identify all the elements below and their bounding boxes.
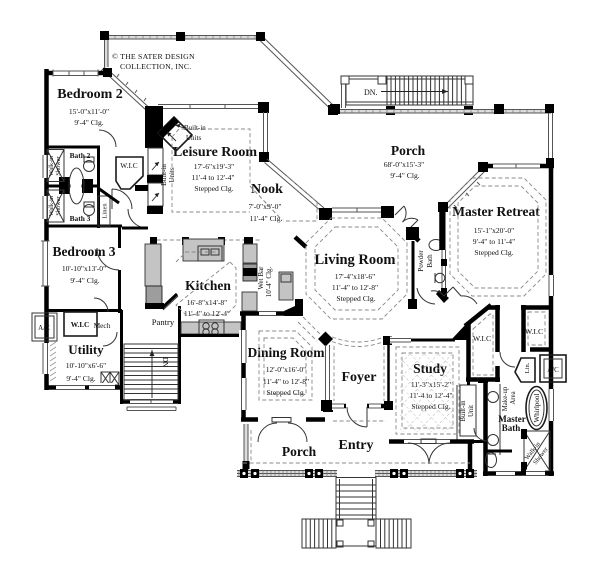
- svg-text:9'-4" Clg.: 9'-4" Clg.: [66, 374, 95, 383]
- svg-text:Linen: Linen: [102, 203, 109, 219]
- svg-text:Built-in: Built-in: [460, 400, 467, 422]
- svg-text:COLLECTION, INC.: COLLECTION, INC.: [120, 62, 191, 71]
- svg-text:16'-8"x14'-8": 16'-8"x14'-8": [187, 298, 228, 307]
- svg-text:12'-0"x16'-0": 12'-0"x16'-0": [266, 365, 307, 374]
- svg-text:11'-4" to 12'-8": 11'-4" to 12'-8": [263, 377, 309, 386]
- svg-text:Utility: Utility: [68, 342, 104, 357]
- svg-text:DN: DN: [161, 357, 169, 367]
- svg-text:11'-4 to 12'-4": 11'-4 to 12'-4": [191, 173, 234, 182]
- svg-text:9'-4" Clg.: 9'-4" Clg.: [390, 171, 419, 180]
- svg-text:9'-4" to 11'-4": 9'-4" to 11'-4": [473, 237, 515, 246]
- svg-text:Whirlpool: Whirlpool: [533, 394, 541, 423]
- svg-text:Wet Bar: Wet Bar: [257, 266, 265, 290]
- svg-text:W.I.C: W.I.C: [71, 320, 90, 329]
- svg-text:Pantry: Pantry: [152, 317, 175, 327]
- svg-text:DN.: DN.: [364, 88, 378, 97]
- svg-text:15'-1"x20'-0": 15'-1"x20'-0": [474, 226, 515, 235]
- svg-text:10'-10"x6'-6": 10'-10"x6'-6": [66, 361, 107, 370]
- svg-text:Leisure Room: Leisure Room: [173, 145, 257, 160]
- svg-text:Bedroom 3: Bedroom 3: [52, 244, 115, 259]
- svg-text:15'-0"x11'-0": 15'-0"x11'-0": [69, 107, 109, 116]
- svg-text:Stepped Clg.: Stepped Clg.: [474, 248, 513, 257]
- svg-text:10'-4" Clg.: 10'-4" Clg.: [265, 266, 273, 297]
- svg-text:Shower: Shower: [55, 155, 62, 175]
- svg-text:Bath 2: Bath 2: [70, 151, 91, 160]
- svg-text:9'-4" Clg.: 9'-4" Clg.: [74, 118, 103, 127]
- svg-text:Units: Units: [186, 134, 201, 142]
- svg-text:Stepped Clg.: Stepped Clg.: [336, 294, 375, 303]
- svg-text:Make-up: Make-up: [502, 386, 509, 411]
- svg-text:Foyer: Foyer: [342, 370, 377, 385]
- svg-text:Walk-in: Walk-in: [48, 155, 55, 176]
- svg-text:7'-0"x9'-0": 7'-0"x9'-0": [249, 202, 282, 211]
- svg-text:W.I.C: W.I.C: [120, 161, 137, 170]
- svg-text:A/C: A/C: [547, 366, 559, 374]
- svg-text:Stepped Clg.: Stepped Clg.: [266, 388, 305, 397]
- svg-text:© THE SATER DESIGN: © THE SATER DESIGN: [112, 52, 195, 61]
- svg-text:11'-4" to 12'-4": 11'-4" to 12'-4": [184, 309, 230, 318]
- svg-text:Bedroom 2: Bedroom 2: [57, 87, 122, 102]
- svg-text:Mech: Mech: [94, 321, 111, 330]
- svg-text:Entry: Entry: [339, 438, 374, 453]
- svg-text:Shower: Shower: [55, 195, 62, 215]
- svg-text:Walk-in: Walk-in: [48, 195, 55, 216]
- svg-text:Living Room: Living Room: [315, 252, 396, 268]
- svg-text:Master Retreat: Master Retreat: [452, 204, 540, 219]
- svg-text:17'-6"x19'-3": 17'-6"x19'-3": [194, 162, 235, 171]
- svg-text:Bath: Bath: [426, 254, 434, 268]
- svg-text:Bath 3: Bath 3: [70, 214, 91, 223]
- svg-text:68'-0"x15'-3": 68'-0"x15'-3": [384, 160, 425, 169]
- svg-text:Kitchen: Kitchen: [185, 278, 231, 293]
- svg-text:11'-4" to 12'-8": 11'-4" to 12'-8": [332, 283, 378, 292]
- svg-text:Lin.: Lin.: [524, 362, 531, 373]
- svg-text:Porch: Porch: [282, 444, 317, 459]
- svg-text:Nook: Nook: [251, 182, 283, 197]
- svg-text:9'-4" Clg.: 9'-4" Clg.: [70, 276, 99, 285]
- svg-text:Unit: Unit: [468, 405, 475, 417]
- svg-text:Stepped Clg.: Stepped Clg.: [194, 184, 233, 193]
- svg-text:17'-4"x18'-6": 17'-4"x18'-6": [335, 272, 376, 281]
- svg-text:Bath: Bath: [502, 423, 521, 433]
- svg-text:Porch: Porch: [391, 143, 426, 158]
- svg-text:Area: Area: [510, 391, 517, 404]
- svg-text:W.I.C: W.I.C: [525, 327, 543, 336]
- svg-text:Built-in: Built-in: [160, 164, 168, 186]
- svg-text:A/C: A/C: [38, 324, 50, 332]
- svg-text:Built-in: Built-in: [184, 124, 206, 132]
- svg-text:Powder: Powder: [417, 250, 425, 272]
- svg-text:W.I.C: W.I.C: [473, 334, 491, 343]
- svg-text:10'-10"x13'-0": 10'-10"x13'-0": [62, 264, 106, 273]
